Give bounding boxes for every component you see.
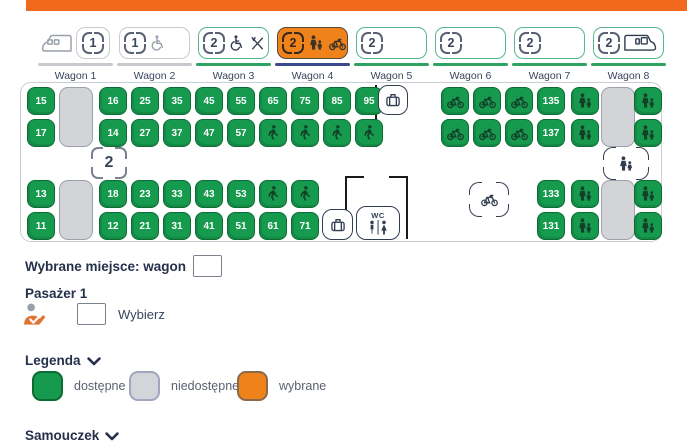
seat-21[interactable]: 21 bbox=[131, 212, 159, 240]
family-area-icon bbox=[603, 147, 649, 180]
wagon-tab-underline bbox=[117, 63, 192, 66]
wagon-label: Wagon 2 bbox=[134, 70, 176, 82]
door-area bbox=[59, 180, 93, 240]
walker-icon bbox=[264, 124, 282, 142]
seat-map: 1516253545556575859513517142737475713713… bbox=[20, 82, 662, 242]
wc-label: WC bbox=[371, 212, 385, 220]
wagon-label: Wagon 3 bbox=[213, 70, 255, 82]
class-badge: 2 bbox=[361, 32, 383, 54]
seat-walker[interactable] bbox=[291, 119, 319, 147]
legend-toggle[interactable]: Legenda bbox=[25, 353, 101, 368]
seat-walker[interactable] bbox=[259, 180, 287, 208]
seat-walker[interactable] bbox=[323, 119, 351, 147]
wagon-tab-underline bbox=[354, 63, 429, 66]
seat-53[interactable]: 53 bbox=[227, 180, 255, 208]
bike-icon bbox=[328, 34, 347, 53]
seat-61[interactable]: 61 bbox=[259, 212, 287, 240]
wagon-tab-1[interactable]: 1 bbox=[76, 27, 110, 59]
wagon-tab-7[interactable]: 2 bbox=[514, 27, 585, 59]
seat-12[interactable]: 12 bbox=[99, 212, 127, 240]
family-icon bbox=[639, 185, 657, 203]
wagon-4: 2 Wagon 4 bbox=[275, 26, 350, 82]
passenger-choose-label: Wybierz bbox=[118, 307, 165, 322]
seat-14[interactable]: 14 bbox=[99, 119, 127, 147]
bike-icon bbox=[478, 92, 497, 111]
bike-storage-icon bbox=[469, 182, 509, 217]
family-icon bbox=[307, 34, 325, 52]
toilet-icon: WC bbox=[356, 206, 400, 240]
seat-51[interactable]: 51 bbox=[227, 212, 255, 240]
page: 1 Wagon 1 1 Wagon 2 2 Wagon 3 bbox=[0, 0, 687, 443]
wagon-1: 1 Wagon 1 bbox=[38, 26, 113, 82]
wall bbox=[406, 176, 408, 239]
wc-icon bbox=[366, 220, 390, 235]
wagon-label: Wagon 8 bbox=[608, 70, 650, 82]
seat-31[interactable]: 31 bbox=[163, 212, 191, 240]
seat-137[interactable]: 137 bbox=[537, 119, 565, 147]
legend-swatch-available bbox=[32, 371, 63, 401]
bike-icon bbox=[446, 92, 465, 111]
wagon-tab-2[interactable]: 1 bbox=[119, 27, 190, 59]
seat-bike[interactable] bbox=[441, 87, 469, 115]
family-icon bbox=[617, 155, 635, 173]
wagon-selector: 1 Wagon 1 1 Wagon 2 2 Wagon 3 bbox=[38, 26, 666, 82]
wagon-tab-8[interactable]: 2 bbox=[593, 27, 664, 59]
seat-23[interactable]: 23 bbox=[131, 180, 159, 208]
wagon-tab-4[interactable]: 2 bbox=[277, 27, 348, 59]
wagon-tab-underline bbox=[591, 63, 666, 66]
wagon-tab-underline bbox=[433, 63, 508, 66]
walker-icon bbox=[328, 124, 346, 142]
wagon-tab-underline bbox=[38, 63, 113, 66]
wagon-tab-underline bbox=[275, 63, 350, 66]
legend-swatch-selected bbox=[237, 371, 268, 401]
walker-icon bbox=[360, 124, 378, 142]
class-badge: 2 bbox=[440, 32, 462, 54]
seat-15[interactable]: 15 bbox=[27, 87, 55, 115]
class-badge: 1 bbox=[124, 32, 146, 54]
wagon-label: Wagon 6 bbox=[450, 70, 492, 82]
luggage-icon bbox=[328, 215, 348, 235]
wagon-label: Wagon 7 bbox=[529, 70, 571, 82]
family-icon bbox=[639, 92, 657, 110]
seat-35[interactable]: 35 bbox=[163, 87, 191, 115]
selected-place-label: Wybrane miejsce: wagon bbox=[25, 259, 186, 274]
legend-item-selected: wybrane bbox=[230, 371, 326, 401]
seat-bike[interactable] bbox=[505, 87, 533, 115]
wagon-tab-6[interactable]: 2 bbox=[435, 27, 506, 59]
door-area bbox=[601, 87, 635, 147]
class-badge: 1 bbox=[82, 32, 104, 54]
train-head-icon bbox=[41, 31, 73, 56]
passenger-avatar-icon bbox=[22, 301, 47, 327]
legend-label: dostępne bbox=[74, 379, 125, 393]
legend-item-available: dostępne bbox=[25, 371, 125, 401]
wagon-3: 2 Wagon 3 bbox=[196, 26, 271, 82]
door-area bbox=[59, 87, 93, 147]
class-2-area-badge: 2 bbox=[91, 147, 127, 179]
seat-65[interactable]: 65 bbox=[259, 87, 287, 115]
luggage-rack-icon bbox=[378, 85, 408, 115]
seat-bike[interactable] bbox=[441, 119, 469, 147]
seat-41[interactable]: 41 bbox=[195, 212, 223, 240]
seat-18[interactable]: 18 bbox=[99, 180, 127, 208]
seat-45[interactable]: 45 bbox=[195, 87, 223, 115]
wagon-tab-underline bbox=[512, 63, 587, 66]
seat-135[interactable]: 135 bbox=[537, 87, 565, 115]
door-area bbox=[601, 180, 635, 240]
family-icon bbox=[576, 217, 594, 235]
wagon-tab-5[interactable]: 2 bbox=[356, 27, 427, 59]
wall bbox=[345, 176, 364, 178]
seat-71[interactable]: 71 bbox=[291, 212, 319, 240]
wagon-label: Wagon 1 bbox=[55, 70, 97, 82]
seat-85[interactable]: 85 bbox=[323, 87, 351, 115]
family-icon bbox=[639, 124, 657, 142]
seat-133[interactable]: 133 bbox=[537, 180, 565, 208]
tutorial-toggle[interactable]: Samouczek bbox=[25, 428, 119, 443]
selected-place-row: Wybrane miejsce: wagon bbox=[25, 255, 222, 277]
passenger-seat-input[interactable] bbox=[77, 303, 106, 325]
wheelchair-icon bbox=[228, 34, 246, 52]
walker-icon bbox=[296, 124, 314, 142]
selected-wagon-input[interactable] bbox=[193, 255, 222, 277]
class-badge: 2 bbox=[598, 32, 620, 54]
legend-label: niedostępne bbox=[171, 379, 239, 393]
wagon-5: 2 Wagon 5 bbox=[354, 26, 429, 82]
wagon-tab-underline bbox=[196, 63, 271, 66]
train-tail-icon bbox=[623, 31, 657, 55]
seat-57[interactable]: 57 bbox=[227, 119, 255, 147]
wall bbox=[389, 176, 408, 178]
seat-47[interactable]: 47 bbox=[195, 119, 223, 147]
family-icon bbox=[576, 124, 594, 142]
bike-icon bbox=[510, 124, 529, 143]
legend-title: Legenda bbox=[25, 353, 81, 368]
wagon-6: 2 Wagon 6 bbox=[433, 26, 508, 82]
wagon-2: 1 Wagon 2 bbox=[117, 26, 192, 82]
tutorial-title: Samouczek bbox=[25, 428, 99, 443]
class-badge: 2 bbox=[519, 32, 541, 54]
seat-walker[interactable] bbox=[355, 119, 383, 147]
chevron-down-icon bbox=[105, 432, 119, 441]
seat-family[interactable] bbox=[571, 212, 599, 240]
top-accent-bar bbox=[26, 0, 687, 11]
restaurant-icon bbox=[249, 35, 266, 52]
seat-27[interactable]: 27 bbox=[131, 119, 159, 147]
wagon-8: 2 Wagon 8 bbox=[591, 26, 666, 82]
seat-17[interactable]: 17 bbox=[27, 119, 55, 147]
family-icon bbox=[576, 185, 594, 203]
seat-family[interactable] bbox=[571, 180, 599, 208]
seat-family[interactable] bbox=[634, 87, 662, 115]
legend-label: wybrane bbox=[279, 379, 326, 393]
legend-swatch-unavailable bbox=[129, 371, 160, 401]
passenger-title: Pasażer 1 bbox=[25, 286, 87, 301]
seat-131[interactable]: 131 bbox=[537, 212, 565, 240]
chevron-down-icon bbox=[87, 357, 101, 366]
seat-11[interactable]: 11 bbox=[27, 212, 55, 240]
seat-16[interactable]: 16 bbox=[99, 87, 127, 115]
seat-family[interactable] bbox=[571, 119, 599, 147]
seat-walker[interactable] bbox=[291, 180, 319, 208]
seat-37[interactable]: 37 bbox=[163, 119, 191, 147]
seat-walker[interactable] bbox=[259, 119, 287, 147]
seat-family[interactable] bbox=[634, 212, 662, 240]
seat-family[interactable] bbox=[571, 87, 599, 115]
passenger-row: Wybierz bbox=[22, 301, 165, 327]
seat-25[interactable]: 25 bbox=[131, 87, 159, 115]
class-badge: 2 bbox=[91, 147, 127, 179]
family-icon bbox=[576, 92, 594, 110]
legend-item-unavailable: niedostępne bbox=[122, 371, 239, 401]
family-icon bbox=[639, 217, 657, 235]
wagon-7: 2 Wagon 7 bbox=[512, 26, 587, 82]
seat-33[interactable]: 33 bbox=[163, 180, 191, 208]
wheelchair-icon bbox=[149, 34, 167, 52]
luggage-rack-icon bbox=[322, 209, 353, 240]
luggage-icon bbox=[383, 90, 403, 110]
seat-43[interactable]: 43 bbox=[195, 180, 223, 208]
seat-family[interactable] bbox=[634, 180, 662, 208]
walker-icon bbox=[264, 185, 282, 203]
wagon-tab-3[interactable]: 2 bbox=[198, 27, 269, 59]
seat-55[interactable]: 55 bbox=[227, 87, 255, 115]
bike-icon bbox=[510, 92, 529, 111]
seat-bike[interactable] bbox=[473, 87, 501, 115]
class-badge: 2 bbox=[282, 32, 304, 54]
walker-icon bbox=[296, 185, 314, 203]
wagon-label: Wagon 4 bbox=[292, 70, 334, 82]
wagon-label: Wagon 5 bbox=[371, 70, 413, 82]
seat-bike[interactable] bbox=[473, 119, 501, 147]
seat-75[interactable]: 75 bbox=[291, 87, 319, 115]
seat-13[interactable]: 13 bbox=[27, 180, 55, 208]
class-badge: 2 bbox=[203, 32, 225, 54]
bike-icon bbox=[478, 124, 497, 143]
bike-icon bbox=[446, 124, 465, 143]
seat-family[interactable] bbox=[634, 119, 662, 147]
seat-bike[interactable] bbox=[505, 119, 533, 147]
